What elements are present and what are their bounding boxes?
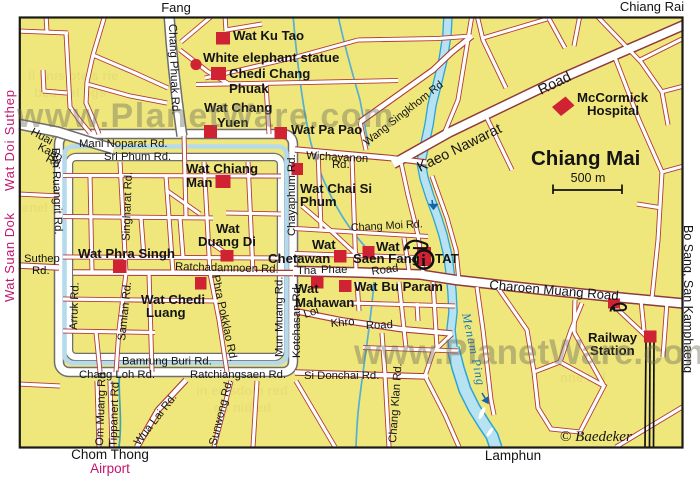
svg-text:Sri Phum Rd.: Sri Phum Rd. [104, 151, 171, 163]
svg-text:TAT: TAT [435, 251, 459, 266]
svg-text:Chetawan: Chetawan [268, 251, 330, 266]
svg-text:Arruk Rd.: Arruk Rd. [68, 282, 82, 330]
svg-text:Phuak: Phuak [229, 81, 269, 96]
svg-text:Suthep: Suthep [24, 253, 60, 265]
svg-text:Hospital: Hospital [587, 103, 639, 118]
svg-text:Chedi Chang: Chedi Chang [229, 66, 310, 81]
svg-text:Khro: Khro [330, 316, 355, 330]
svg-text:Fang: Fang [161, 0, 191, 15]
svg-text:Mani Noparat Rd.: Mani Noparat Rd. [79, 138, 168, 150]
svg-text:Chayaphum Rd.: Chayaphum Rd. [286, 154, 298, 236]
svg-text:Wat Bu Param: Wat Bu Param [354, 279, 443, 294]
svg-text:Ratchiangsaen Rd.: Ratchiangsaen Rd. [190, 369, 286, 381]
svg-text:Wat Ku Tao: Wat Ku Tao [233, 28, 304, 43]
svg-text:Mun Muang Rd.: Mun Muang Rd. [274, 277, 286, 357]
svg-text:Rd.: Rd. [32, 265, 50, 277]
svg-text:Tippanert Rd: Tippanert Rd [108, 382, 122, 447]
svg-text:Rd.: Rd. [332, 159, 350, 171]
svg-text:White elephant statue: White elephant statue [203, 50, 339, 65]
svg-text:Chang Loh Rd.: Chang Loh Rd. [79, 369, 155, 381]
svg-text:Luang: Luang [146, 305, 186, 320]
svg-text:Duang Di: Duang Di [198, 234, 256, 249]
svg-text:www.PlanetWare.com: www.PlanetWare.com [16, 97, 395, 135]
svg-text:in ei lsdom red: in ei lsdom red [196, 383, 288, 398]
svg-text:Chiang Rai: Chiang Rai [620, 0, 684, 14]
svg-text:i: i [421, 251, 426, 270]
svg-text:Road: Road [366, 319, 393, 332]
svg-text:Lamphun: Lamphun [485, 448, 541, 463]
svg-text:Chom Thong: Chom Thong [71, 447, 149, 462]
svg-text:Wat Phra Singh: Wat Phra Singh [78, 246, 175, 261]
svg-text:Wat: Wat [295, 281, 319, 296]
svg-text:Man: Man [186, 175, 212, 190]
svg-text:Airport: Airport [90, 461, 130, 476]
svg-text:500 m: 500 m [571, 171, 606, 185]
svg-text:Bamrung Buri Rd.: Bamrung Buri Rd. [122, 356, 212, 368]
svg-text:Tha: Tha [297, 265, 317, 277]
svg-text:Singharat Rd.: Singharat Rd. [121, 172, 135, 241]
svg-text:Om Muang Rd: Om Muang Rd [94, 372, 109, 446]
svg-text:Mahawan: Mahawan [295, 295, 354, 310]
svg-text:© Baedeker: © Baedeker [560, 429, 632, 445]
svg-text:Wat: Wat [312, 237, 336, 252]
svg-text:Wat Suan Dok: Wat Suan Dok [2, 213, 17, 302]
svg-text:Saen Fang: Saen Fang [353, 251, 420, 266]
svg-text:www.PlanetWare.com: www.PlanetWare.com [353, 333, 700, 372]
svg-text:Chiang Mai: Chiang Mai [531, 147, 640, 170]
svg-text:Wat Doi Suthep: Wat Doi Suthep [2, 89, 17, 191]
svg-text:Phum: Phum [300, 194, 337, 209]
svg-text:Wat Chiang: Wat Chiang [186, 161, 258, 176]
